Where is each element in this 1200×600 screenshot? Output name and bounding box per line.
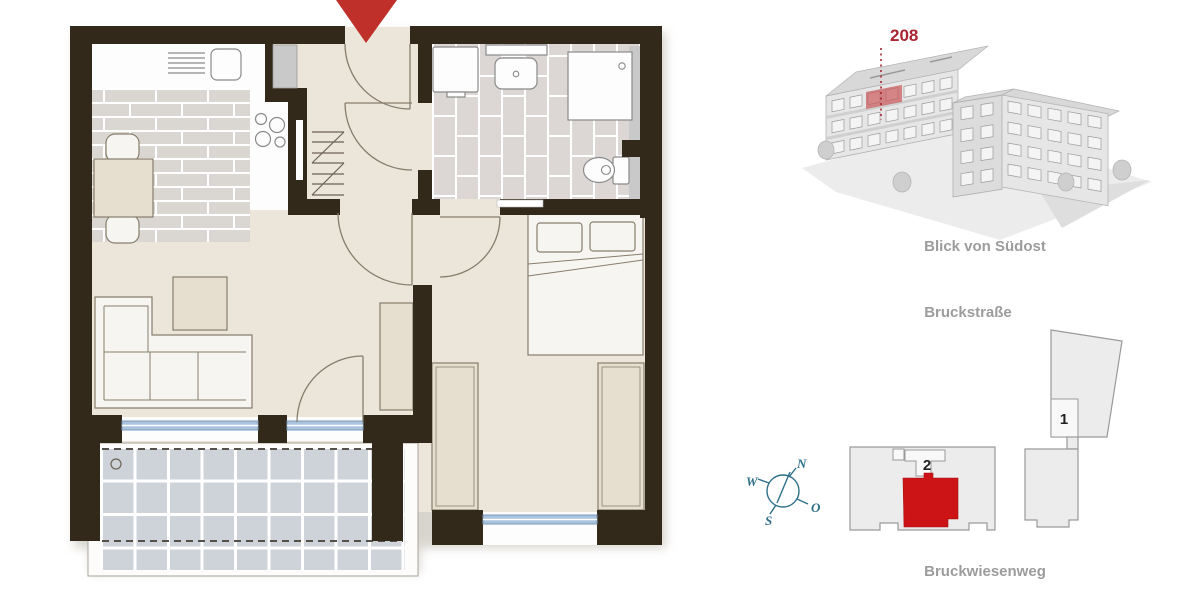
site-building-2: 2 [850,447,995,530]
wardrobe-right [598,363,644,510]
balcony-tiles [100,446,405,570]
site-building-2-label: 2 [923,457,931,474]
bed [528,214,643,355]
shower-icon [568,52,632,120]
unit-2-highlight [903,473,958,527]
site-building-1: 1 [1025,330,1122,527]
cabinet [380,303,413,410]
compass-w: W [746,474,759,489]
street-label-bottom: Bruckwiesenweg [924,563,1046,580]
wardrobe-left [432,363,478,510]
toilet-icon [584,157,630,184]
bedroom-window [483,512,597,545]
entrance-threshold [345,27,410,44]
dining-table [94,159,153,217]
compass-rose-icon: N W O S [746,456,821,528]
entrance-duct [273,45,297,88]
bath-shelf [486,45,547,55]
building-b [953,89,1119,206]
compass-e: O [811,500,821,515]
street-label-top: Bruckstraße [924,304,1012,321]
pillow [537,223,582,252]
building-3d-view: 208 Blick von Südost [802,26,1152,255]
washbasin-icon [495,58,537,89]
wall-niche [296,120,303,180]
balcony-door-window [287,417,363,441]
bath-threshold [497,200,543,207]
chair [106,215,139,243]
living-window-left [122,417,258,441]
washing-machine-icon [433,47,478,97]
site-plan: Bruckstraße 2 1 N W O S [746,304,1122,580]
chair [106,134,139,162]
compass-n: N [796,456,807,471]
compass-s: S [765,513,772,528]
coffee-table [173,277,227,330]
view-caption: Blick von Südost [924,238,1046,255]
floor-plan-page: 208 Blick von Südost Bruckstraße 2 1 [0,0,1200,600]
balcony [88,443,418,576]
pillow [590,222,635,251]
floor-plan [70,0,666,576]
unit-number-label: 208 [890,26,918,45]
kitchen-counter-side [250,88,288,210]
floor-plan-sheet: 208 Blick von Südost Bruckstraße 2 1 [0,0,1200,600]
site-building-1-label: 1 [1060,411,1068,428]
